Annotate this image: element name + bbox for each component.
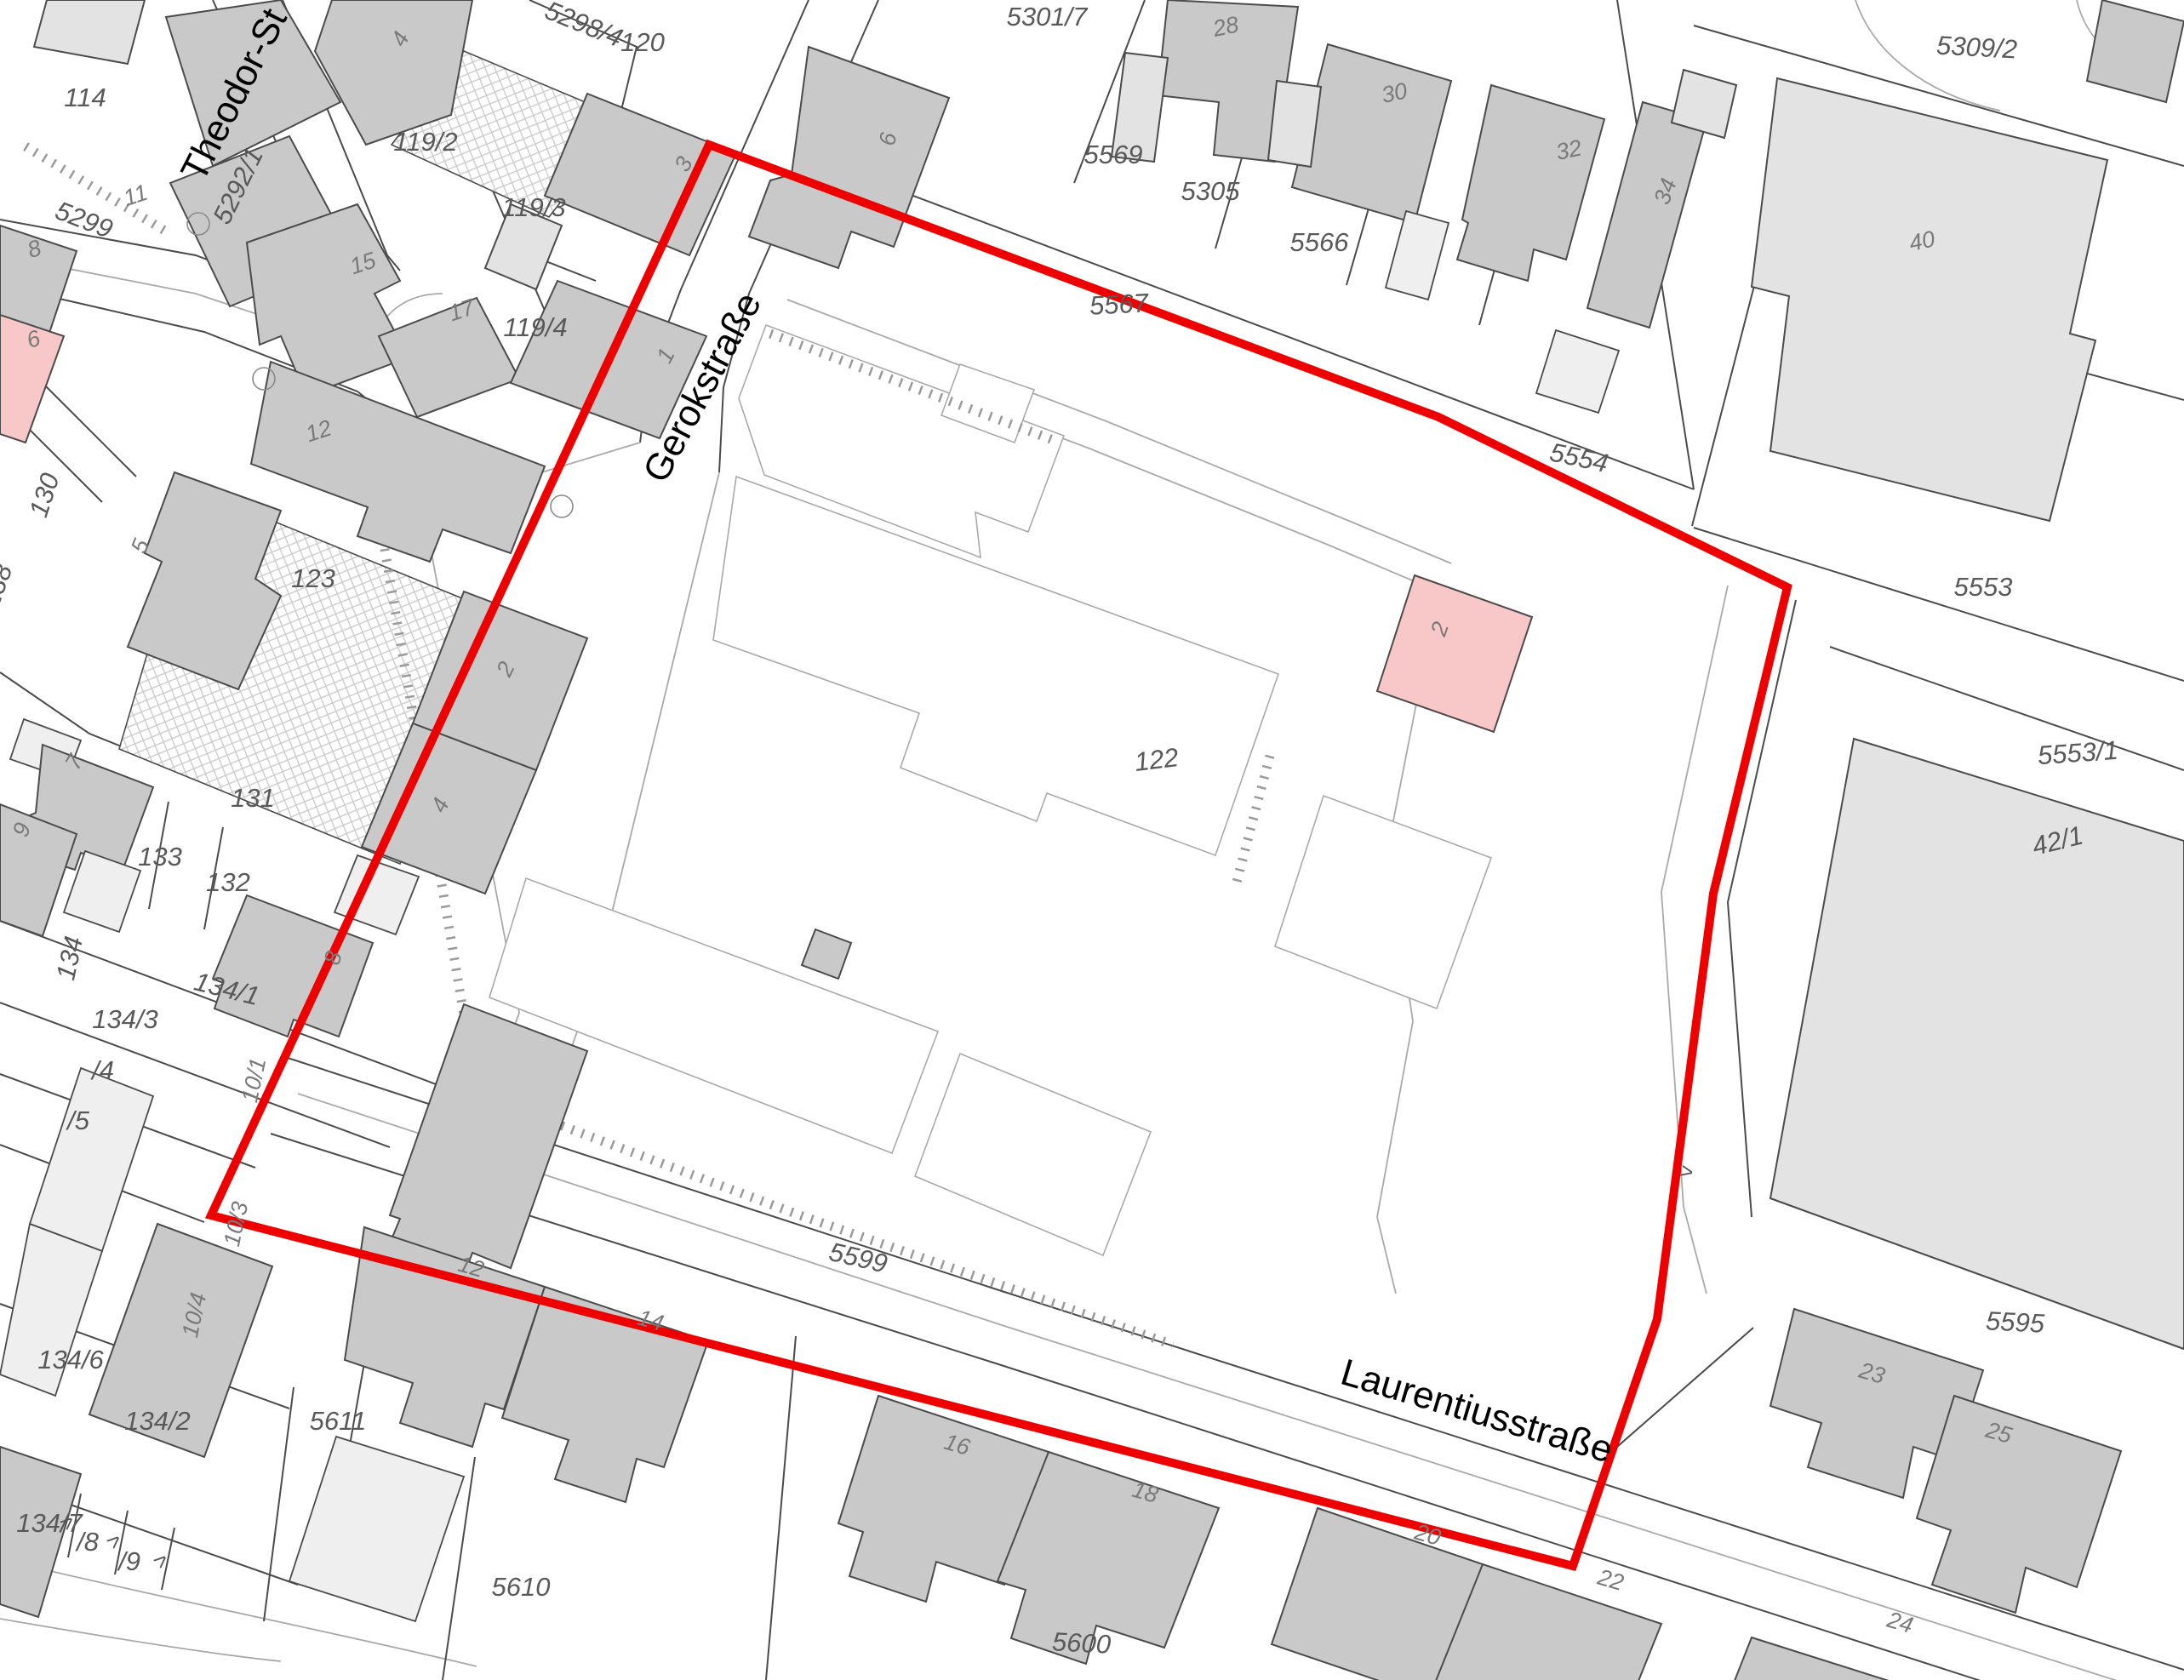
parcel-number-5599: 5599 [826,1237,890,1279]
building-42-1 [1770,739,2184,1349]
parcel-number-134-6: 134/6 [37,1345,104,1374]
parcel-number-134-3: 134/3 [92,1004,158,1034]
parcel-number-133: 133 [138,842,182,871]
parcel-number-119-2: 119/2 [393,127,457,157]
house-number-40: 40 [1907,226,1937,256]
parcel-number-5309-2: 5309/2 [1935,31,2018,65]
parcel-number--8: /8 [75,1527,100,1557]
parcel-number-5553-1: 5553/1 [2037,735,2119,771]
house-number-22: 22 [1594,1564,1627,1596]
house-number-32: 32 [1553,134,1584,165]
house-number-28: 28 [1209,11,1241,42]
parcel-number-130: 130 [23,470,65,521]
house-number-10-3: 10/3 [219,1199,253,1249]
parcel-number-5566: 5566 [1290,227,1350,257]
parcel-number-5298-4: 5298/4 [540,0,626,53]
parcel-number-5553: 5553 [1954,572,2013,602]
parcel-number-132: 132 [206,867,250,897]
parcel-number--5: /5 [66,1106,90,1135]
parcel-number-122: 122 [1133,742,1181,777]
house-number-24: 24 [1884,1607,1916,1638]
parcel-number-119-4: 119/4 [503,312,567,342]
small-shed [802,929,851,979]
pink-building-2 [1377,575,1532,732]
building-40 [1752,78,2107,521]
parcel-number-138: 138 [0,559,19,611]
parcel-number-5569: 5569 [1084,140,1143,169]
parcel-number-5610: 5610 [492,1572,551,1602]
parcel-number--4: /4 [90,1055,114,1085]
house-number-30: 30 [1379,77,1409,108]
parcel-number-5567: 5567 [1089,288,1150,321]
map-canvas: GerokstraßeLaurentiusstraßeTheodor-Stße … [0,0,2184,1680]
parcel-number-5595: 5595 [1985,1306,2045,1339]
parcel-number-134-2: 134/2 [124,1406,191,1436]
parcel-number-120: 120 [620,27,665,57]
parcel-number-5301-7: 5301/7 [1007,2,1089,31]
parcel-number-119-3: 119/3 [501,192,565,222]
parcel-number-131: 131 [231,783,275,813]
parcel-number-134: 134 [50,934,89,983]
parcel-number-123: 123 [291,563,335,593]
parcel-number-114: 114 [64,83,106,112]
cadastral-map: GerokstraßeLaurentiusstraßeTheodor-Stße … [0,0,2184,1680]
parcel-number-5299: 5299 [51,196,117,244]
house-number-11: 11 [120,180,151,211]
parcel-number-5611: 5611 [310,1406,367,1436]
parcel-number-5600: 5600 [1051,1626,1112,1660]
parcel-number-5305: 5305 [1181,176,1241,206]
